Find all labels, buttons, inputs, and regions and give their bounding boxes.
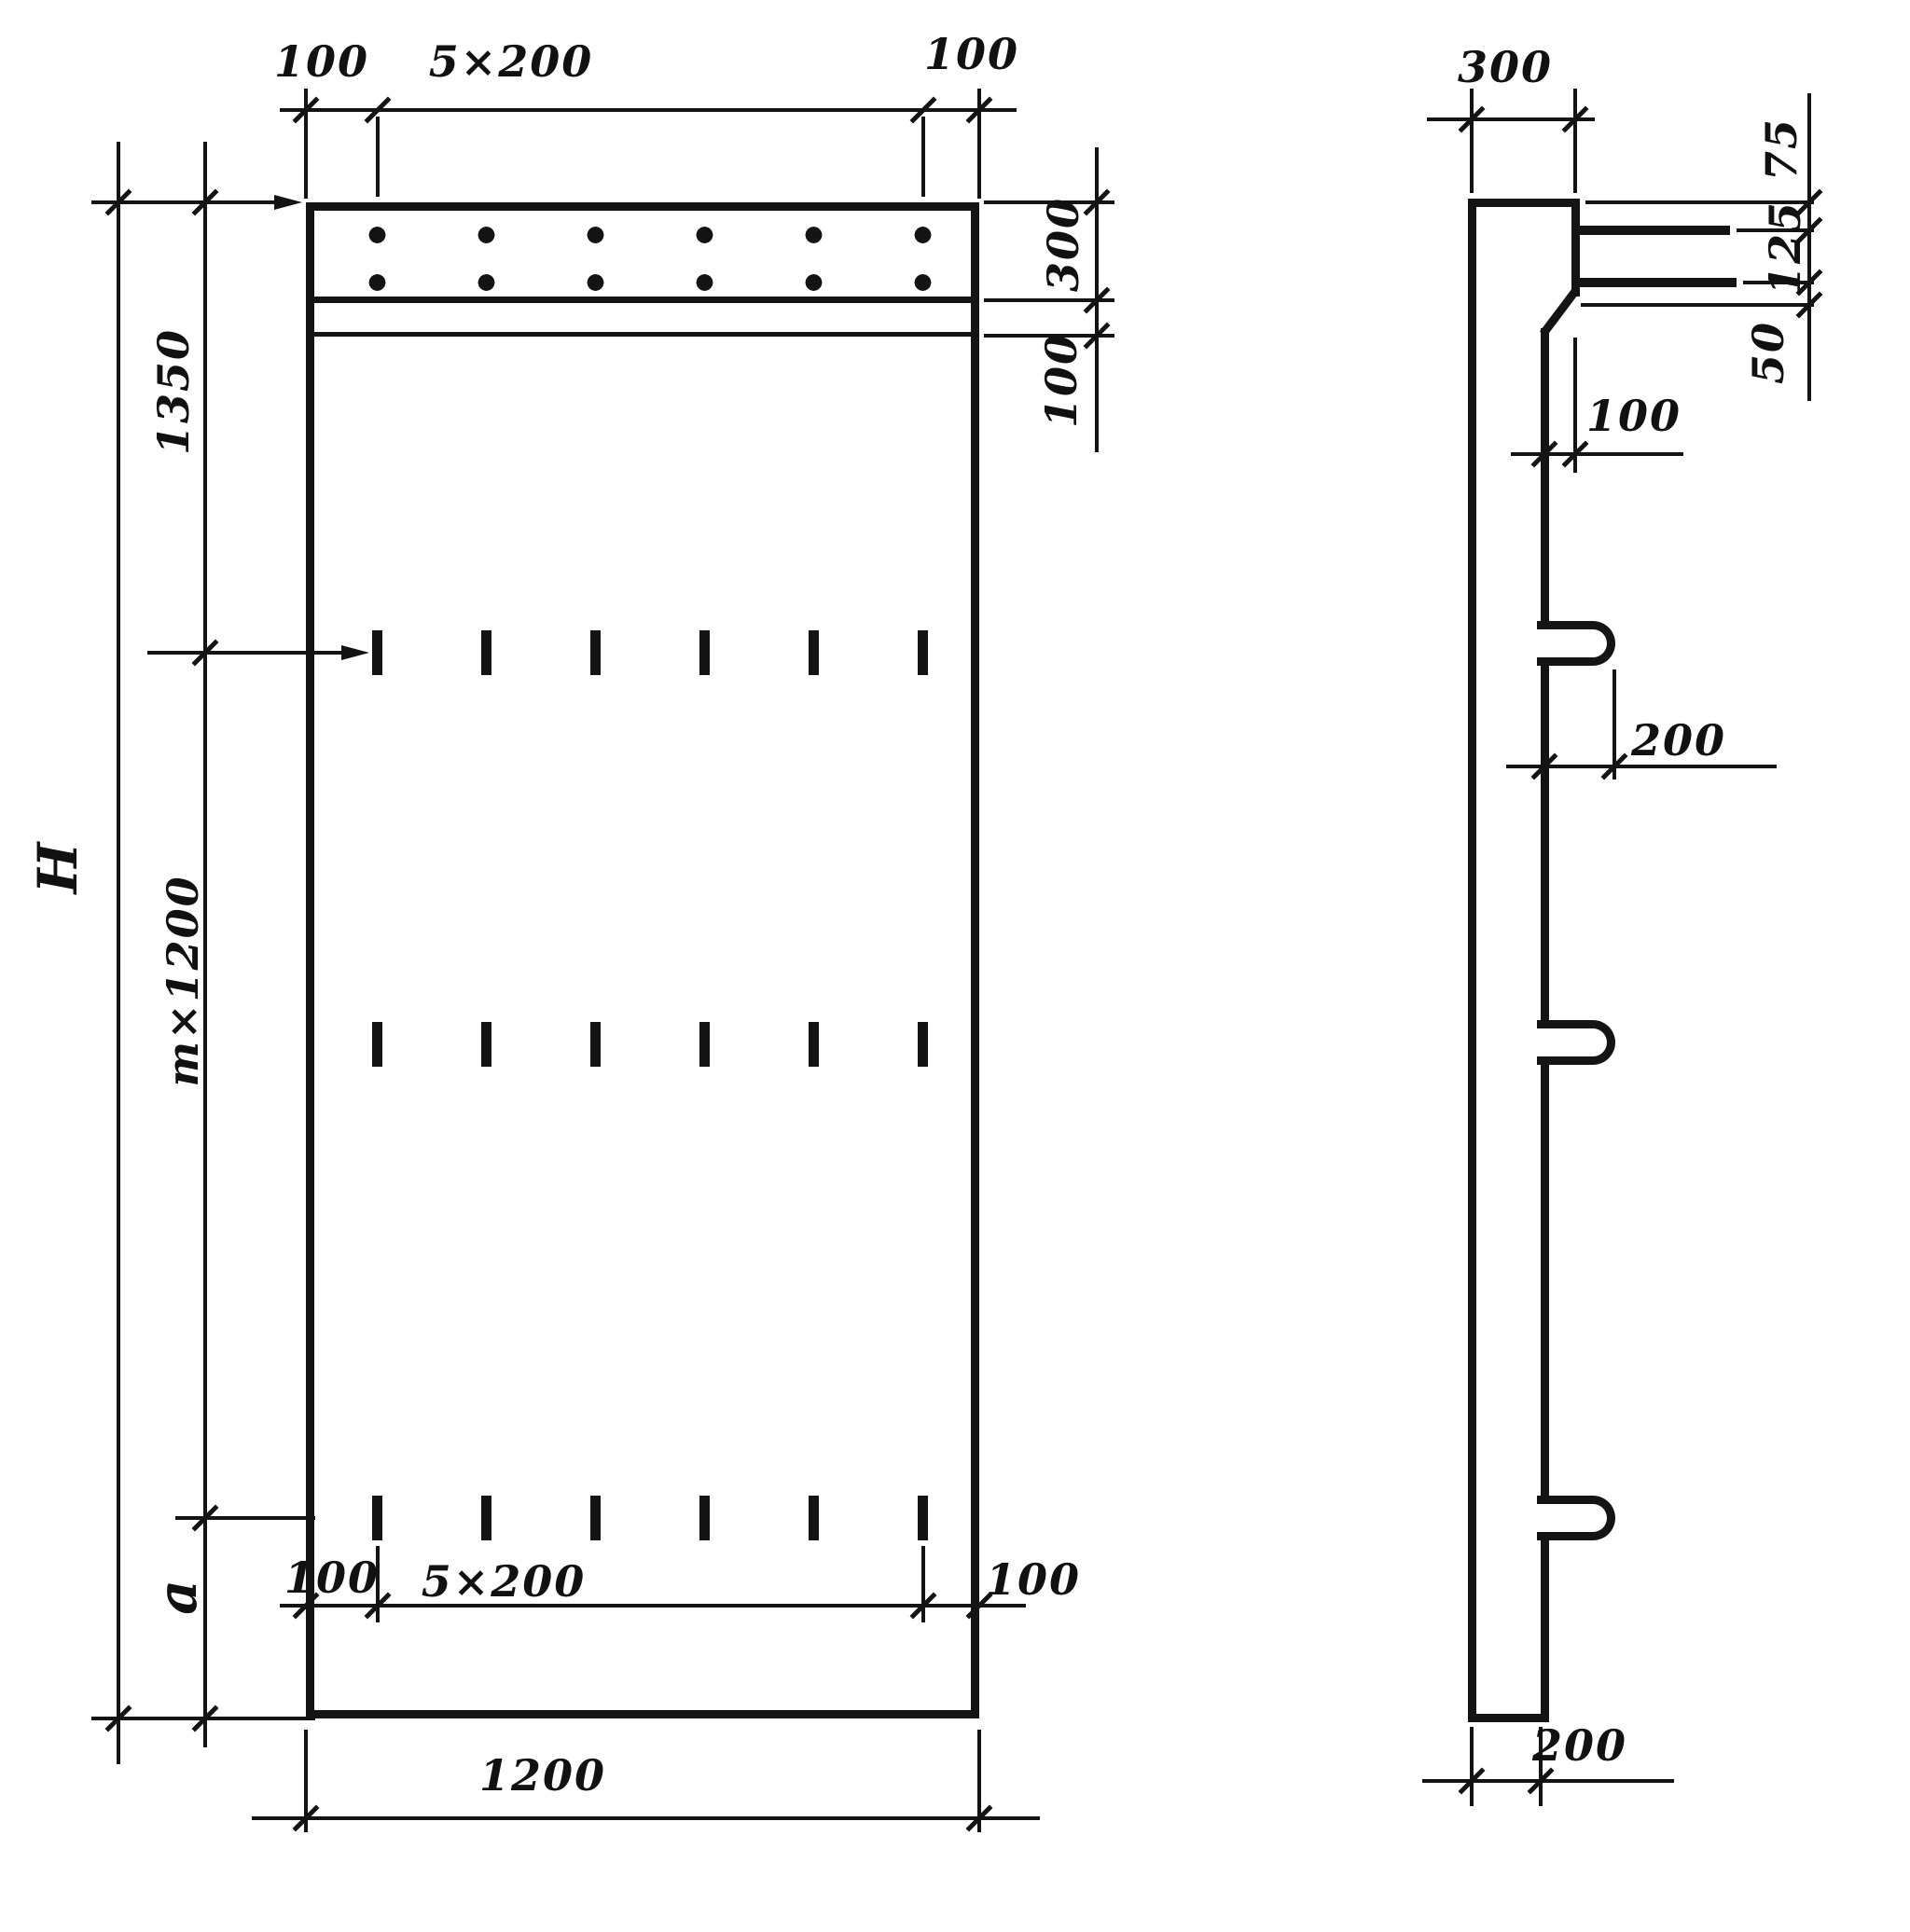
dim-bar2-offset: 50	[1743, 321, 1793, 384]
dim-bottom-left-margin: 100	[284, 1552, 380, 1603]
side-ext-cap-bottom	[1581, 303, 1814, 307]
side-top-edge	[1468, 199, 1580, 207]
front-panel-outline	[306, 202, 979, 1718]
front-left-dim-line-overall	[117, 142, 120, 1764]
dim-top-zone: 1350	[148, 328, 199, 455]
front-left-ext-row1-arrow	[341, 645, 369, 660]
dim-top-left-margin: 100	[274, 36, 369, 87]
side-loop-2	[1537, 1020, 1615, 1065]
front-slot-row-3	[323, 1496, 977, 1540]
front-bottom-ext-col-last	[921, 1546, 925, 1622]
front-left-ext-top-arrow	[274, 195, 302, 210]
dim-bottom-zone: a	[145, 1578, 209, 1615]
dim-step: 100	[1586, 391, 1682, 441]
front-top-dim-line	[280, 108, 1017, 112]
side-loop-3	[1537, 1496, 1615, 1540]
dim-overall-height: H	[26, 841, 90, 894]
dim-top-spacing: 5×200	[429, 36, 594, 87]
dim-cap-thickness: 300	[1458, 42, 1553, 92]
side-front-face	[1468, 199, 1476, 1722]
side-loop-1	[1537, 621, 1615, 666]
side-top-ext-right	[1573, 89, 1577, 193]
front-left-ext-row1	[147, 651, 345, 655]
side-thickness-ext-left	[1470, 1727, 1474, 1806]
drawing-canvas: 100 5×200 100 300 100 H 1350 m×1200 a 10…	[0, 0, 1910, 1932]
side-top-ext-left	[1470, 89, 1474, 193]
front-band-bottom-line	[314, 297, 973, 303]
dim-bar-spacing: 125	[1760, 200, 1810, 296]
dim-joint-height: 100	[1036, 333, 1086, 428]
front-left-ext-row3	[175, 1516, 315, 1520]
dim-panel-width: 1200	[479, 1750, 606, 1801]
dim-bottom-right-margin: 100	[986, 1554, 1081, 1605]
dim-bar1-offset: 75	[1756, 117, 1806, 181]
side-step-dim-line	[1511, 452, 1683, 456]
dim-top-right-margin: 100	[924, 29, 1019, 79]
side-thickness-dim-line	[1422, 1779, 1674, 1783]
front-width-dim-line	[252, 1816, 1040, 1820]
front-top-ext-col-last	[921, 117, 925, 197]
front-slot-row-2	[323, 1022, 977, 1067]
dim-cap-height: 300	[1038, 197, 1088, 292]
front-top-ext-col-first	[376, 117, 380, 197]
side-dowel-bar-1	[1576, 226, 1730, 235]
front-dowel-dots-row-1	[323, 225, 977, 245]
front-dowel-dots-row-2	[323, 272, 977, 293]
dim-bottom-spacing: 5×200	[422, 1556, 587, 1607]
front-slot-row-1	[323, 630, 977, 675]
dim-module-zone: m×1200	[158, 875, 208, 1086]
dim-loop-length: 200	[1631, 715, 1726, 766]
side-dowel-bar-2	[1576, 278, 1737, 287]
front-band-joint-line	[314, 332, 973, 337]
front-bottom-dim-line	[280, 1604, 1026, 1608]
dim-panel-thickness: 200	[1532, 1720, 1627, 1771]
